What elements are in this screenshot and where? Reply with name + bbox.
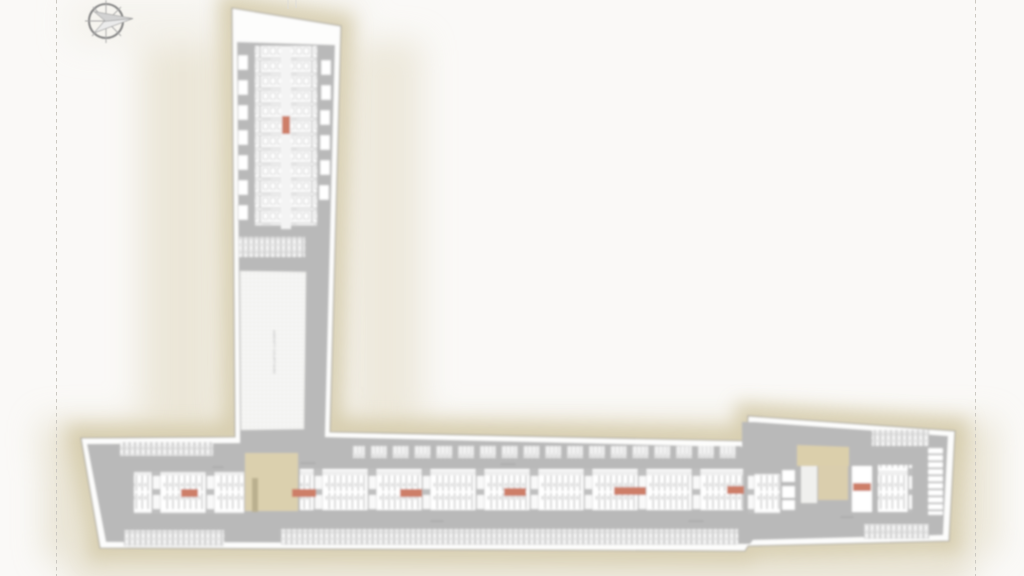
svg-text:AMENITY COURTYARD: AMENITY COURTYARD — [272, 330, 277, 374]
